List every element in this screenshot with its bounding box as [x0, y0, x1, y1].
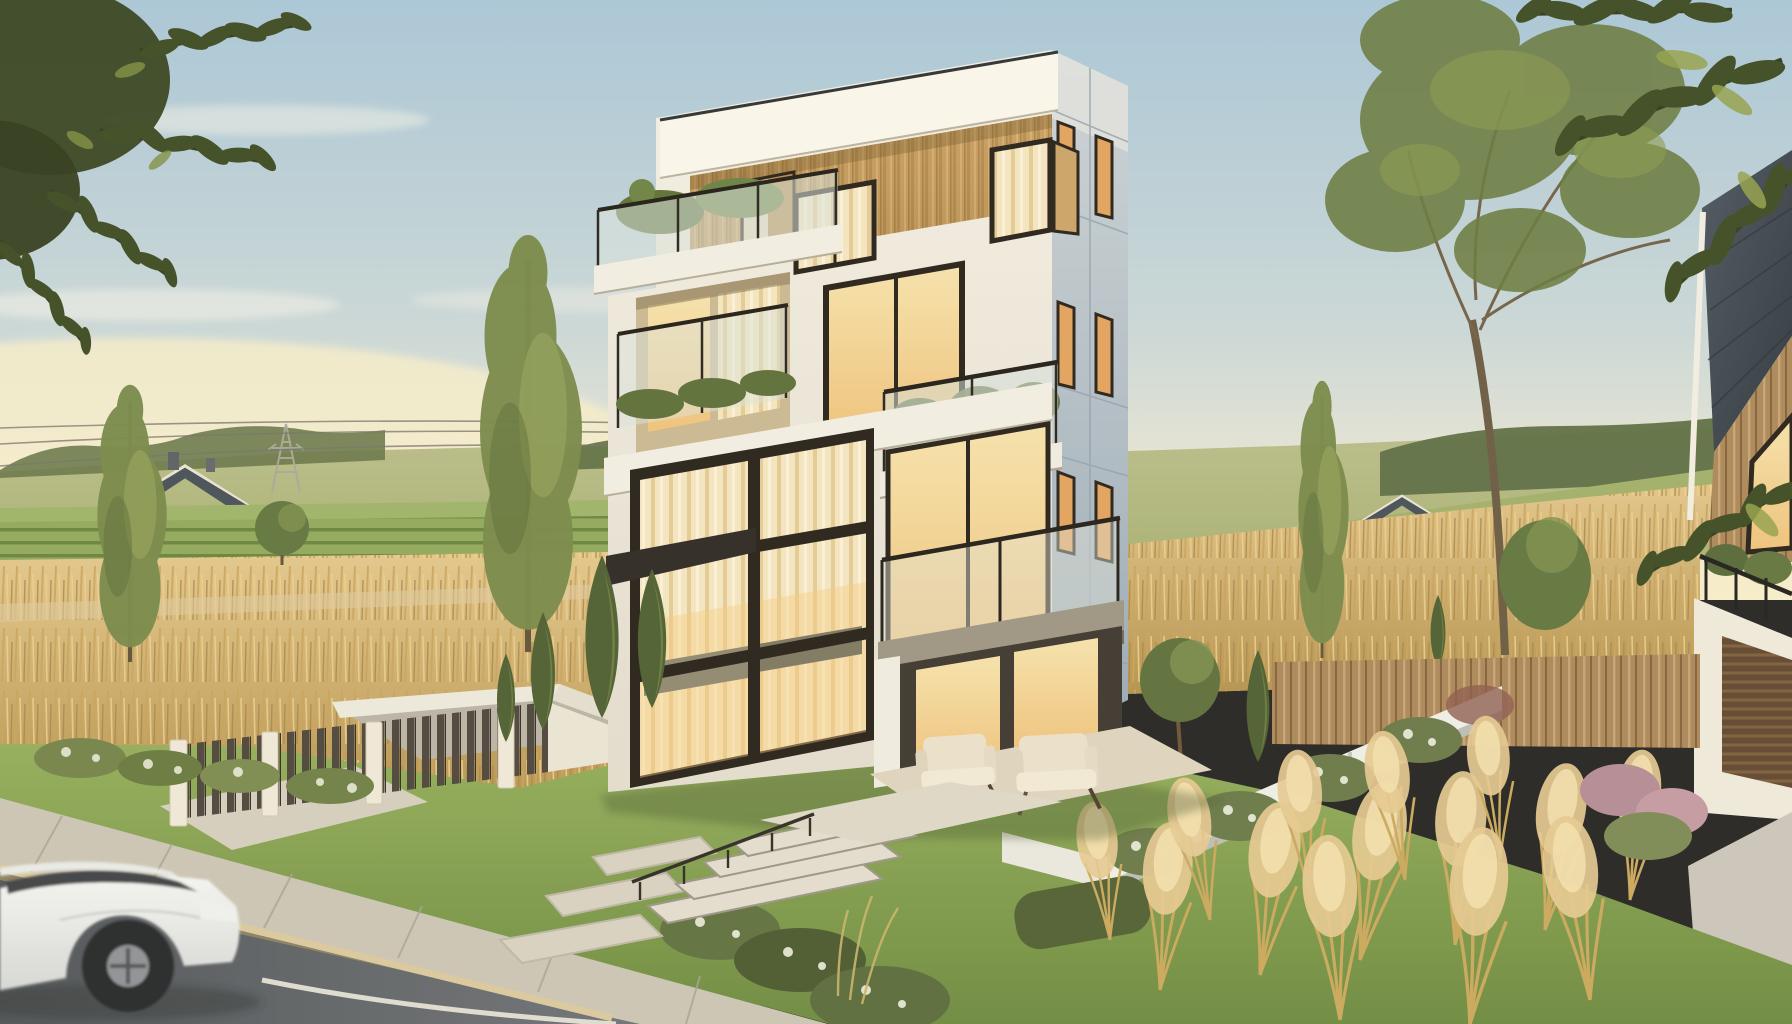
vignette: [0, 0, 1792, 1024]
scene-image: Modern three-storey house with timber-cl…: [0, 0, 1792, 1024]
scene-canvas: [0, 0, 1792, 1024]
